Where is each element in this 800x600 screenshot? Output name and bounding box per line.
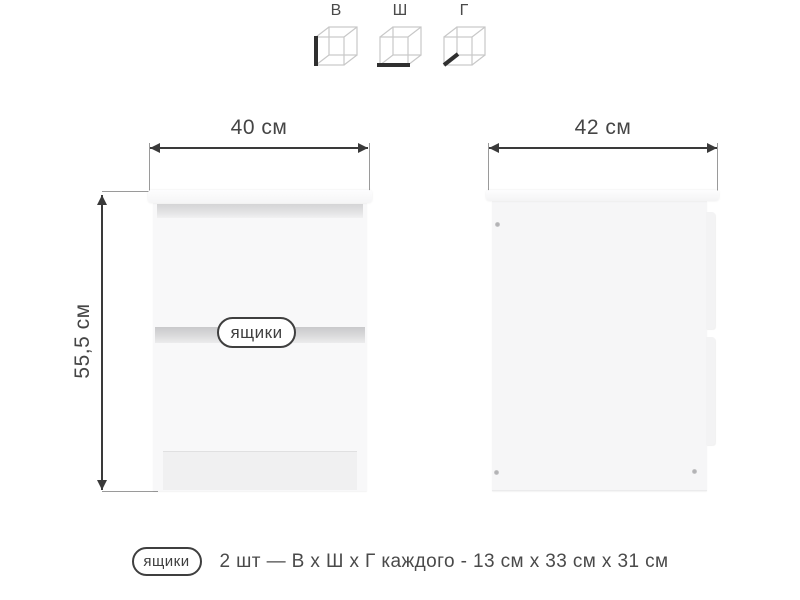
side-view-cabinet-panel [492, 201, 707, 491]
depth-cube-group: Г [440, 2, 488, 67]
screw-dot-top-left [495, 222, 500, 227]
front-height-extension-bottom [102, 491, 158, 492]
front-width-dimension-label: 40 см [150, 116, 368, 140]
side-depth-extension-right [717, 143, 718, 191]
footnote-drawers-dimensions: 2 шт — В х Ш х Г каждого - 13 см х 33 см… [220, 551, 669, 573]
width-cube-label: Ш [393, 2, 408, 20]
footnote-drawers-label: ящики [143, 553, 189, 570]
drawers-callout-label: ящики [230, 323, 282, 343]
front-view-top-gap-shadow [157, 204, 363, 218]
width-cube-icon [377, 23, 423, 67]
side-view-top-panel [486, 190, 719, 201]
side-view-lower-drawer-front-edge [706, 337, 715, 445]
height-cube-icon [313, 23, 359, 67]
front-height-dimension-arrow [101, 195, 103, 490]
front-view-plinth-recess [163, 451, 357, 490]
width-cube-group: Ш [376, 2, 424, 67]
front-view-top-panel [148, 190, 372, 203]
front-width-extension-left [149, 143, 150, 192]
screw-dot-bottom-left [494, 470, 499, 475]
footnote-drawers-badge: ящики [132, 547, 202, 576]
front-height-dimension-label: 55,5 см [71, 295, 95, 387]
drawers-callout-badge: ящики [217, 317, 296, 348]
side-depth-dimension-label: 42 см [489, 116, 717, 140]
drawers-footnote: ящики 2 шт — В х Ш х Г каждого - 13 см х… [0, 547, 800, 576]
height-cube-group: В [312, 2, 360, 67]
front-height-extension-top [102, 191, 150, 192]
height-cube-label: В [331, 2, 342, 20]
front-width-extension-right [369, 143, 370, 192]
depth-cube-label: Г [460, 2, 469, 20]
dimension-cubes-legend: В Ш [0, 2, 800, 67]
depth-cube-icon [441, 23, 487, 67]
screw-dot-bottom-right [692, 469, 697, 474]
furniture-dimensions-diagram: В Ш [0, 0, 800, 600]
side-depth-dimension-arrow [489, 147, 717, 149]
front-width-dimension-arrow [150, 147, 368, 149]
side-depth-extension-left [488, 143, 489, 191]
side-view-upper-drawer-front-edge [706, 212, 715, 329]
